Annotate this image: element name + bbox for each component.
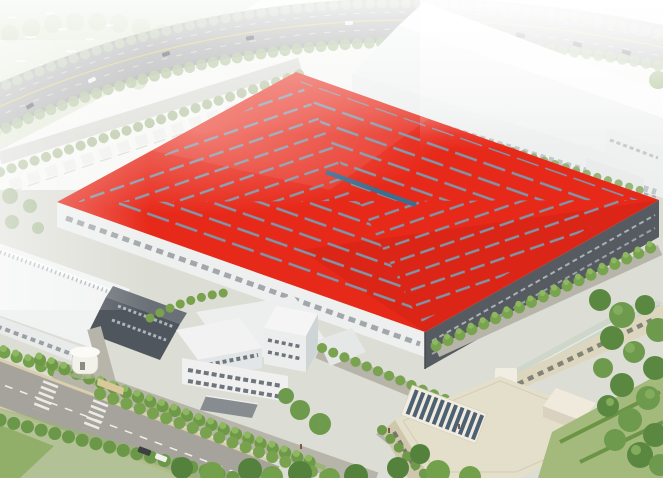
aerial-rendering: Aerial rendering of industrial campus wi… — [0, 0, 663, 478]
gatehouse — [70, 347, 100, 380]
gatehouse-roof — [70, 347, 100, 358]
gatehouse-door — [80, 362, 85, 370]
rendering-canvas — [0, 0, 663, 478]
haze-top-right — [420, 0, 663, 150]
